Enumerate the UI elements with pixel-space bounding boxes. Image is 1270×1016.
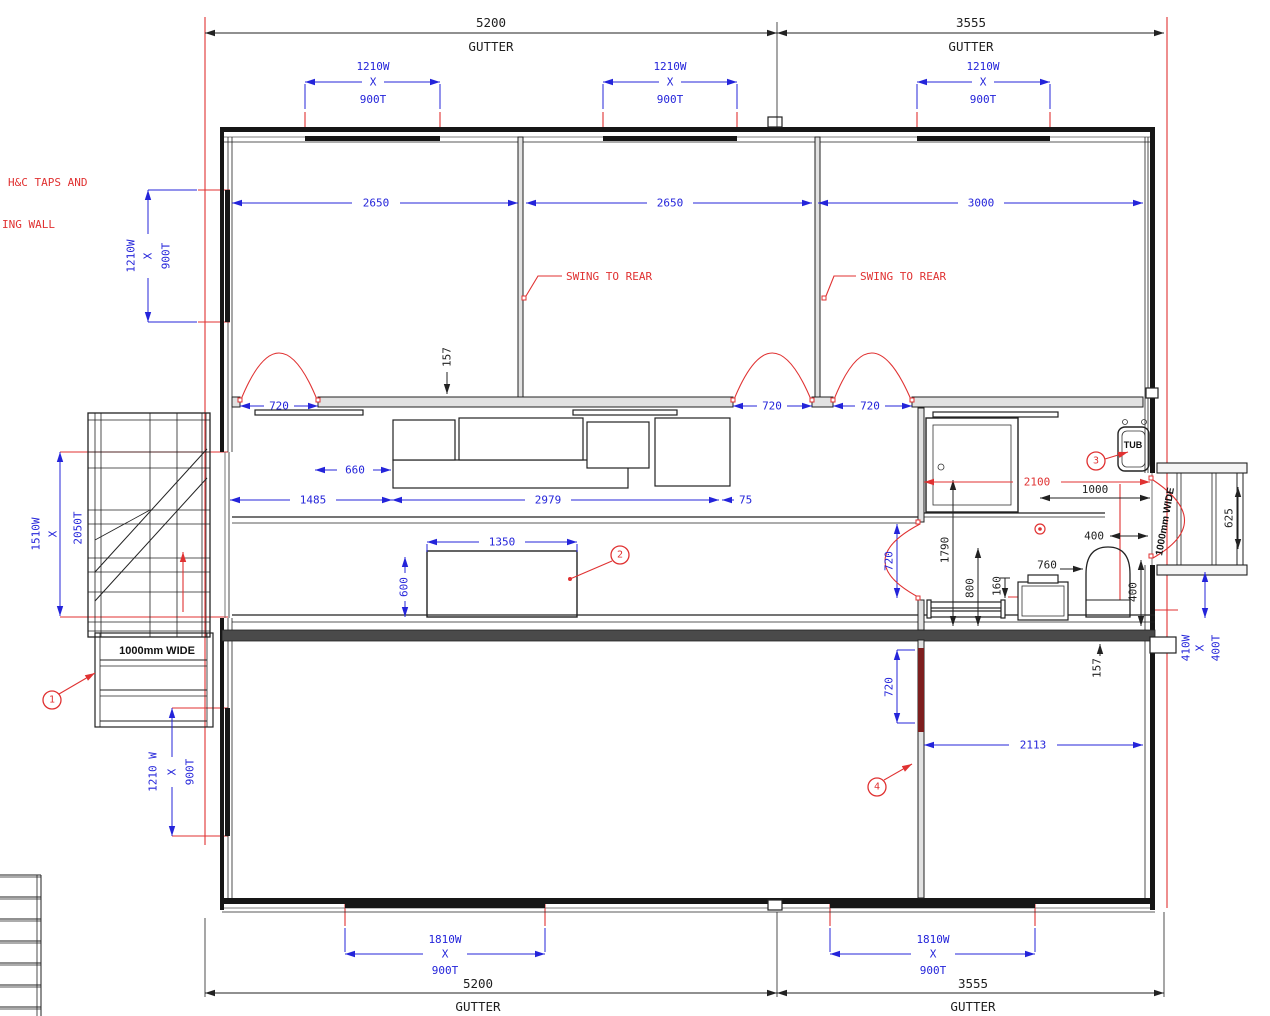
swing-note-1: SWING TO REAR bbox=[566, 270, 652, 283]
left-window-upper bbox=[225, 190, 230, 322]
dim-400v: 400 bbox=[1127, 582, 1140, 602]
dim-800: 800 bbox=[964, 578, 977, 598]
swing-leader-1 bbox=[526, 276, 562, 296]
dim-1485: 1485 bbox=[300, 494, 327, 507]
window-label: 900T bbox=[360, 93, 387, 106]
window-label: 1810W bbox=[916, 933, 949, 946]
gutter-bottom-left-value: 5200 bbox=[463, 976, 493, 991]
mid-wall bbox=[318, 397, 733, 407]
right-wall-lower bbox=[1150, 565, 1155, 910]
floor-plan-drawing: 1000mm WIDE bbox=[0, 0, 1270, 1016]
door-swing-2 bbox=[733, 353, 812, 402]
dim-157-top: 157 bbox=[441, 347, 454, 367]
landing-label: 400T bbox=[1210, 634, 1223, 661]
front-room-wall-highlight bbox=[918, 648, 924, 732]
window-label: 1210W bbox=[125, 239, 138, 272]
dim-door-b: 720 bbox=[762, 400, 782, 413]
dim-660: 660 bbox=[345, 464, 365, 477]
bottom-window-2 bbox=[830, 903, 1035, 908]
gutter-bottom-right-value: 3555 bbox=[958, 976, 988, 991]
kitchen-cabinet-2 bbox=[459, 418, 583, 460]
fixtures bbox=[255, 410, 1149, 620]
tub-label: TUB bbox=[1124, 440, 1143, 450]
window-label: 900T bbox=[160, 242, 173, 269]
entry-steps-left: 1000mm WIDE bbox=[95, 633, 213, 727]
balloon-3-number: 3 bbox=[1093, 456, 1099, 467]
window-label: 1210W bbox=[966, 60, 999, 73]
dim-2100: 2100 bbox=[1024, 476, 1051, 489]
window-label: 900T bbox=[184, 758, 197, 785]
dim-room3: 3000 bbox=[968, 197, 995, 210]
dim-160: 160 bbox=[991, 576, 1004, 596]
gutter-top-right-value: 3555 bbox=[956, 15, 986, 30]
window-label: 1210W bbox=[653, 60, 686, 73]
bulkhead-2 bbox=[573, 410, 677, 415]
kitchen-cabinet-1 bbox=[393, 420, 455, 460]
window-label: 1810W bbox=[428, 933, 461, 946]
dim-door-c: 720 bbox=[860, 400, 880, 413]
shower bbox=[926, 418, 1018, 512]
door-swing-1 bbox=[240, 353, 318, 402]
note-taps: H&C TAPS AND bbox=[8, 176, 87, 189]
window-label: 900T bbox=[920, 964, 947, 977]
dim-1350: 1350 bbox=[489, 536, 516, 549]
divider-wall-2 bbox=[815, 137, 820, 397]
access-ramp bbox=[88, 413, 210, 637]
window-label: 900T bbox=[970, 93, 997, 106]
divider-wall-1 bbox=[518, 137, 523, 397]
gutter-top-right-unit: GUTTER bbox=[948, 39, 994, 54]
ramp-label: 2050T bbox=[72, 511, 85, 544]
window-label: X bbox=[667, 76, 674, 89]
window-label: 900T bbox=[657, 93, 684, 106]
right-wall-upper bbox=[1150, 127, 1155, 473]
kitchen-tall-unit bbox=[655, 418, 730, 486]
left-wall-lower bbox=[220, 618, 224, 910]
text-labels: 5200 GUTTER 3555 GUTTER 5200 GUTTER 3555… bbox=[2, 15, 1236, 1014]
swing-leader-2 bbox=[826, 276, 856, 296]
note-wall: ING WALL bbox=[2, 218, 55, 231]
balloon-4-number: 4 bbox=[874, 782, 880, 793]
gutter-bottom-right-unit: GUTTER bbox=[950, 999, 996, 1014]
left-window-lower bbox=[225, 708, 230, 836]
dim-front-door: 720 bbox=[883, 677, 896, 697]
ramp-slope-1 bbox=[95, 449, 207, 572]
toilet bbox=[1086, 547, 1130, 617]
bottom-window-1 bbox=[345, 903, 545, 908]
bathroom-wall-lower bbox=[918, 600, 924, 630]
side-door-width-label: 1000mm WIDE bbox=[1154, 486, 1177, 556]
black-dimensions bbox=[205, 22, 1238, 997]
gutter-top-left-value: 5200 bbox=[476, 15, 506, 30]
wall-junction-box bbox=[1146, 388, 1158, 398]
tub-tap-1 bbox=[1123, 420, 1128, 425]
ramp-slope-2 bbox=[95, 478, 207, 601]
front-room-top-wall bbox=[222, 630, 1155, 641]
top-window-2 bbox=[603, 136, 737, 141]
top-wall bbox=[222, 127, 1155, 132]
dim-1000: 1000 bbox=[1082, 483, 1109, 496]
vanity bbox=[1018, 582, 1068, 620]
dim-room2: 2650 bbox=[657, 197, 684, 210]
kitchen-cabinet-3 bbox=[587, 422, 649, 468]
title-block-rows bbox=[0, 875, 41, 1016]
tub-tap-2 bbox=[1142, 420, 1147, 425]
left-wall-upper bbox=[220, 127, 224, 452]
roof-vent-bottom bbox=[768, 900, 782, 910]
dim-2113: 2113 bbox=[1020, 739, 1047, 752]
window-label: X bbox=[166, 768, 179, 775]
balloon-2-number: 2 bbox=[617, 550, 623, 561]
top-window-3 bbox=[917, 136, 1050, 141]
bathroom-wall-upper bbox=[918, 408, 924, 522]
window-label: 900T bbox=[432, 964, 459, 977]
dim-157-bottom: 157 bbox=[1091, 658, 1104, 678]
dim-600: 600 bbox=[398, 577, 411, 597]
door-swing-3 bbox=[833, 353, 912, 402]
red-annotations bbox=[43, 276, 1185, 796]
steps-width-label: 1000mm WIDE bbox=[119, 645, 195, 657]
window-label: 1210W bbox=[356, 60, 389, 73]
top-window-1 bbox=[305, 136, 440, 141]
landing-label: X bbox=[1194, 644, 1207, 651]
dim-room1: 2650 bbox=[363, 197, 390, 210]
balloon-1-number: 1 bbox=[49, 695, 55, 706]
bulkhead-3 bbox=[933, 412, 1058, 417]
floor-plan-canvas: 1000mm WIDE bbox=[0, 0, 1270, 1016]
window-label: X bbox=[370, 76, 377, 89]
gutter-bottom-left-unit: GUTTER bbox=[455, 999, 501, 1014]
dim-75: 75 bbox=[739, 494, 752, 507]
dim-bath-door: 720 bbox=[883, 551, 896, 571]
window-label: X bbox=[980, 76, 987, 89]
landing-label: 410W bbox=[1180, 634, 1193, 661]
window-label: X bbox=[930, 948, 937, 961]
dim-625: 625 bbox=[1223, 508, 1236, 528]
landing-step bbox=[1150, 637, 1176, 653]
dim-760: 760 bbox=[1037, 559, 1057, 572]
dim-door-a: 720 bbox=[269, 400, 289, 413]
dim-2979: 2979 bbox=[535, 494, 562, 507]
window-label: 1210 W bbox=[147, 752, 160, 792]
gutter-top-left-unit: GUTTER bbox=[468, 39, 514, 54]
ramp-label: 1510W bbox=[30, 517, 43, 550]
dim-1790: 1790 bbox=[939, 537, 952, 564]
walls bbox=[220, 117, 1176, 912]
bench-seat bbox=[930, 602, 1002, 608]
dim-400h: 400 bbox=[1084, 530, 1104, 543]
window-label: X bbox=[442, 948, 449, 961]
swing-note-2: SWING TO REAR bbox=[860, 270, 946, 283]
ramp-label: X bbox=[47, 530, 60, 537]
window-label: X bbox=[142, 252, 155, 259]
shower-drain bbox=[938, 464, 944, 470]
roof-vent-top bbox=[768, 117, 782, 127]
island-bench bbox=[427, 551, 577, 617]
